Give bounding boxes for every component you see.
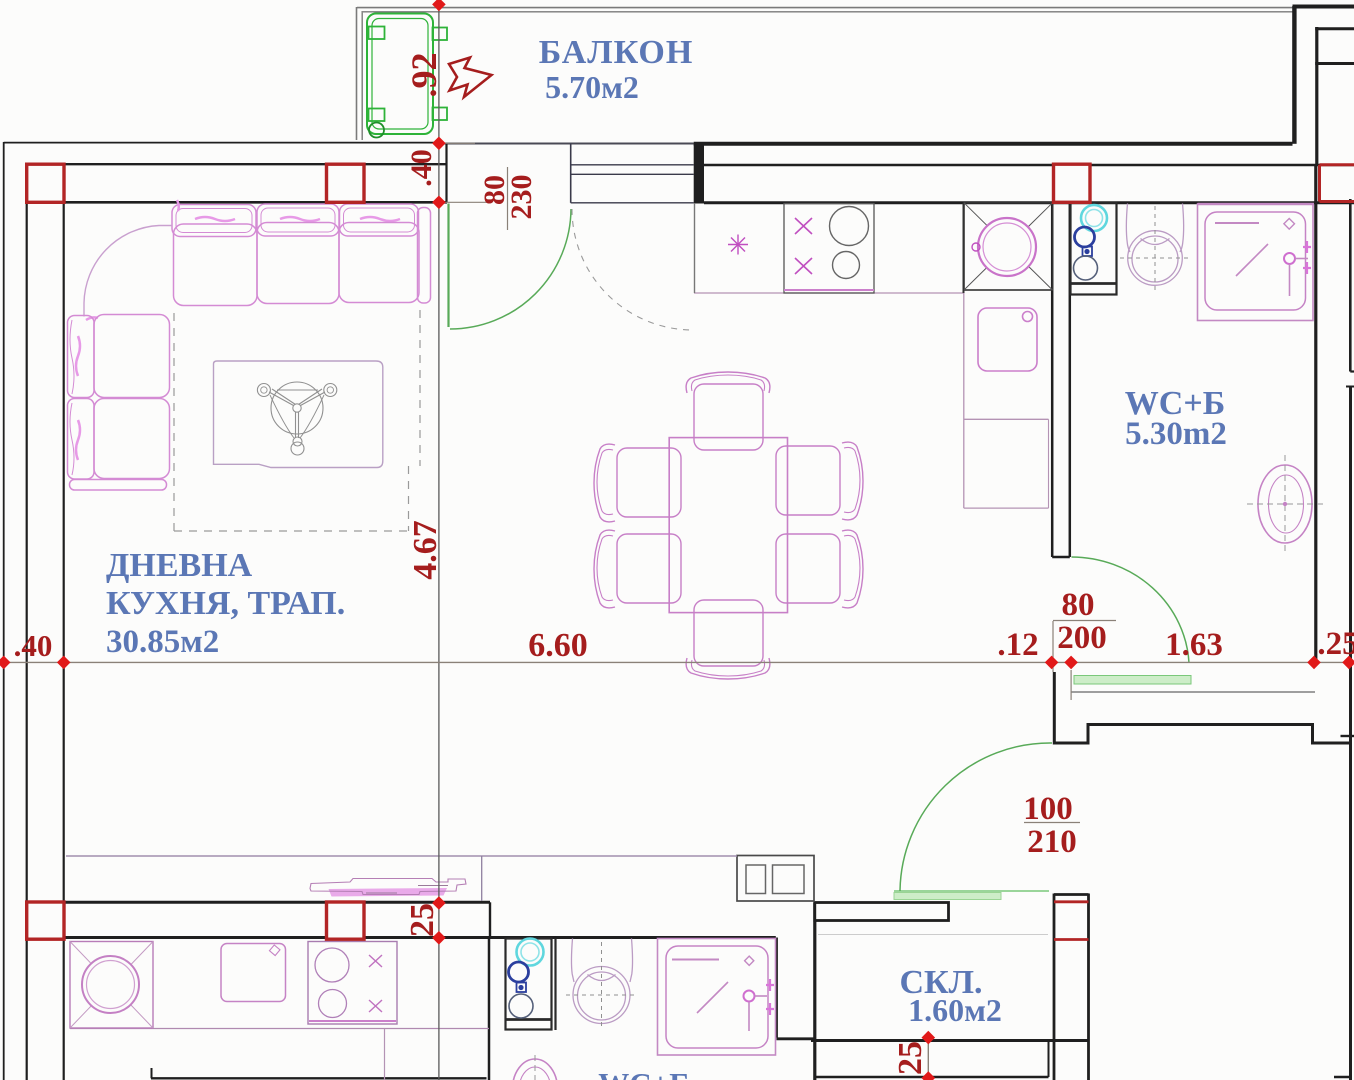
svg-text:230: 230 (505, 175, 538, 220)
svg-text:80: 80 (1062, 587, 1095, 623)
svg-text:100: 100 (1023, 791, 1073, 827)
svg-text:.40: .40 (405, 149, 438, 187)
svg-text:1.63: 1.63 (1165, 627, 1223, 663)
svg-text:25: 25 (404, 903, 441, 937)
svg-text:.25: .25 (1317, 626, 1354, 662)
svg-text:.92: .92 (404, 53, 444, 98)
svg-text:.40: .40 (14, 628, 53, 663)
svg-text:5.30m2: 5.30m2 (1125, 416, 1227, 452)
svg-text:30.85м2: 30.85м2 (106, 624, 219, 660)
svg-text:.12: .12 (997, 627, 1038, 663)
svg-text:25: 25 (892, 1041, 929, 1075)
svg-text:5.70м2: 5.70м2 (545, 69, 639, 105)
svg-text:1.60м2: 1.60м2 (908, 992, 1002, 1028)
svg-text:КУХНЯ, ТРАП.: КУХНЯ, ТРАП. (106, 585, 345, 622)
svg-text:БАЛКОН: БАЛКОН (539, 34, 694, 71)
svg-text:6.60: 6.60 (528, 627, 588, 664)
svg-text:WC+Б: WC+Б (598, 1066, 690, 1080)
svg-text:ДНЕВНА: ДНЕВНА (106, 547, 253, 584)
svg-text:4.67: 4.67 (407, 520, 444, 580)
svg-text:200: 200 (1057, 620, 1107, 656)
svg-text:210: 210 (1027, 824, 1077, 860)
